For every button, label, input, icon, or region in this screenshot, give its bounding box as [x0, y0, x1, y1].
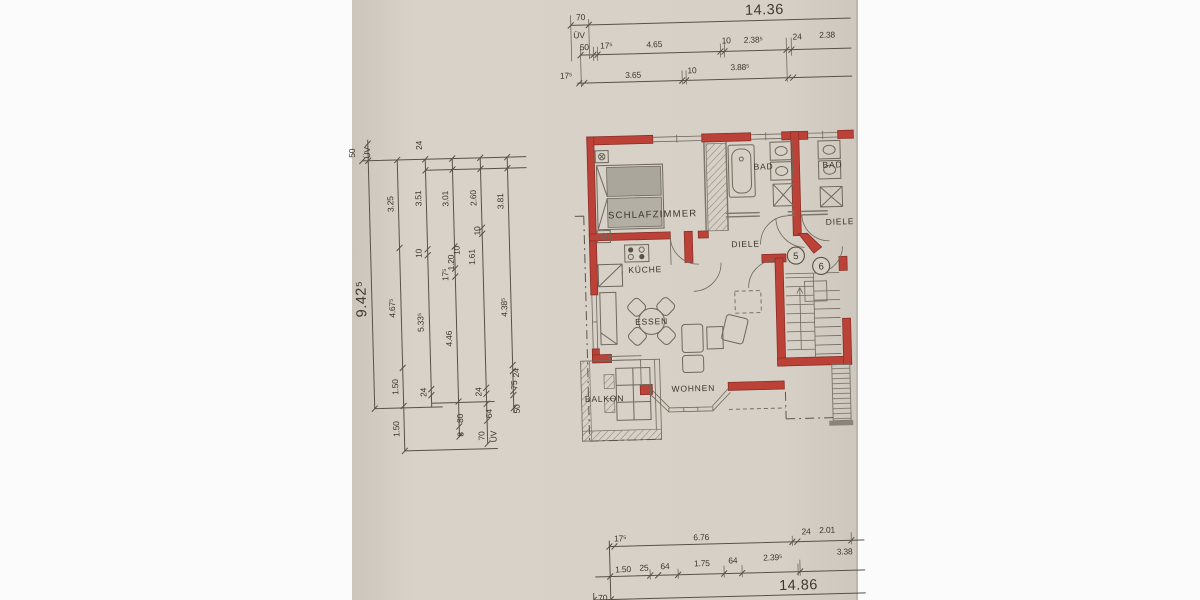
- dim-label: 2.38⁵: [744, 34, 763, 44]
- dim-label: 4.67⁵: [387, 299, 397, 318]
- dim-label: 3.81: [495, 193, 505, 209]
- room-label-bad-left: BAD: [753, 161, 773, 172]
- apartment-number-label: 6: [818, 261, 824, 272]
- dim-label: 24: [792, 31, 802, 41]
- dim-label: 24: [511, 368, 521, 378]
- dim-label: 24: [801, 526, 811, 536]
- dim-label: 10: [687, 65, 697, 75]
- dim-label: 25: [639, 563, 649, 573]
- dim-label: 3.88⁵: [730, 62, 749, 72]
- dim-label: 2.38: [819, 29, 835, 39]
- room-label-kueche: KÜCHE: [628, 264, 662, 275]
- dim-label: 17⁵: [614, 533, 627, 543]
- dim-label: 24: [414, 140, 424, 150]
- dim-label: 17⁵: [600, 40, 613, 50]
- room-label-diele-right: DIELE: [826, 216, 855, 227]
- dim-label: 3.01: [440, 190, 450, 206]
- dim-label: 10: [472, 226, 482, 236]
- dim-label: 4.46: [444, 330, 454, 346]
- dim-label: ÜV: [362, 146, 372, 158]
- dim-label: 6.76: [693, 532, 709, 542]
- dim-label: 3.65: [625, 70, 641, 80]
- dim-label: 64: [484, 409, 494, 419]
- apartment-number-6: 6: [812, 257, 829, 274]
- dim-label: 64: [728, 555, 738, 565]
- dim-label: 64: [660, 561, 670, 571]
- room-label-diele-left: DIELE: [731, 239, 760, 250]
- apartment-number-label: 5: [793, 251, 799, 262]
- dim-label: 10: [722, 35, 732, 45]
- dim-label: 50: [512, 404, 522, 414]
- dim-label: 70: [598, 593, 608, 600]
- dim-label: 10: [451, 245, 461, 255]
- dim-label: 3.51: [413, 190, 423, 206]
- dim-label: 2.01: [819, 525, 835, 535]
- dim-label: 2.60: [468, 190, 478, 206]
- dim-label: 1.75: [694, 558, 710, 568]
- dim-label: 1.50: [390, 379, 400, 395]
- floor-plan-svg: 14.36 70 ÜV 50 17⁵ 4.65 10 2.38⁵ 24 2.38…: [0, 0, 1200, 600]
- dim-label: ÜV: [573, 30, 585, 40]
- dim-label: 8: [455, 432, 465, 437]
- room-label-essen: ESSEN: [635, 316, 668, 327]
- dim-label: 50: [580, 42, 590, 52]
- dim-label: 3.25: [385, 196, 395, 212]
- dim-label: ÜV: [488, 430, 498, 442]
- dim-label: 80: [455, 413, 465, 423]
- dim-label: 4.38⁵: [499, 298, 509, 317]
- dim-label: 3.38: [837, 546, 853, 556]
- dim-label: 2.39⁵: [763, 552, 782, 562]
- dim-label: 1.20: [446, 254, 456, 270]
- room-label-bad-right: BAD: [822, 159, 842, 170]
- dim-label: 1.50: [391, 421, 401, 437]
- dim-label: 1.50: [615, 564, 631, 574]
- dim-label: 17⁵: [560, 70, 573, 80]
- apartment-number-5: 5: [787, 247, 804, 264]
- room-label-schlafzimmer: SCHLAFZIMMER: [608, 208, 698, 221]
- room-label-wohnen: WOHNEN: [671, 383, 715, 394]
- dim-label: 4.65: [646, 39, 662, 49]
- dim-label: 70: [476, 431, 486, 441]
- dim-label: 75: [509, 380, 519, 390]
- dim-label: 9.42⁵: [353, 280, 370, 317]
- dim-label: 50: [347, 148, 357, 158]
- built-in-wardrobe: [706, 143, 728, 230]
- dim-label: 14.86: [779, 577, 818, 594]
- dim-label: 10: [414, 248, 424, 258]
- room-label-balkon: BALKON: [585, 393, 625, 404]
- dim-label: 24: [473, 387, 483, 397]
- dim-label: 5.33⁵: [415, 313, 425, 332]
- dim-label: 14.36: [745, 2, 784, 19]
- scanned-floor-plan: 14.36 70 ÜV 50 17⁵ 4.65 10 2.38⁵ 24 2.38…: [0, 0, 1200, 600]
- dim-label: 70: [576, 12, 586, 22]
- dim-label: 24: [418, 387, 428, 397]
- dim-label: 1.61: [467, 249, 477, 265]
